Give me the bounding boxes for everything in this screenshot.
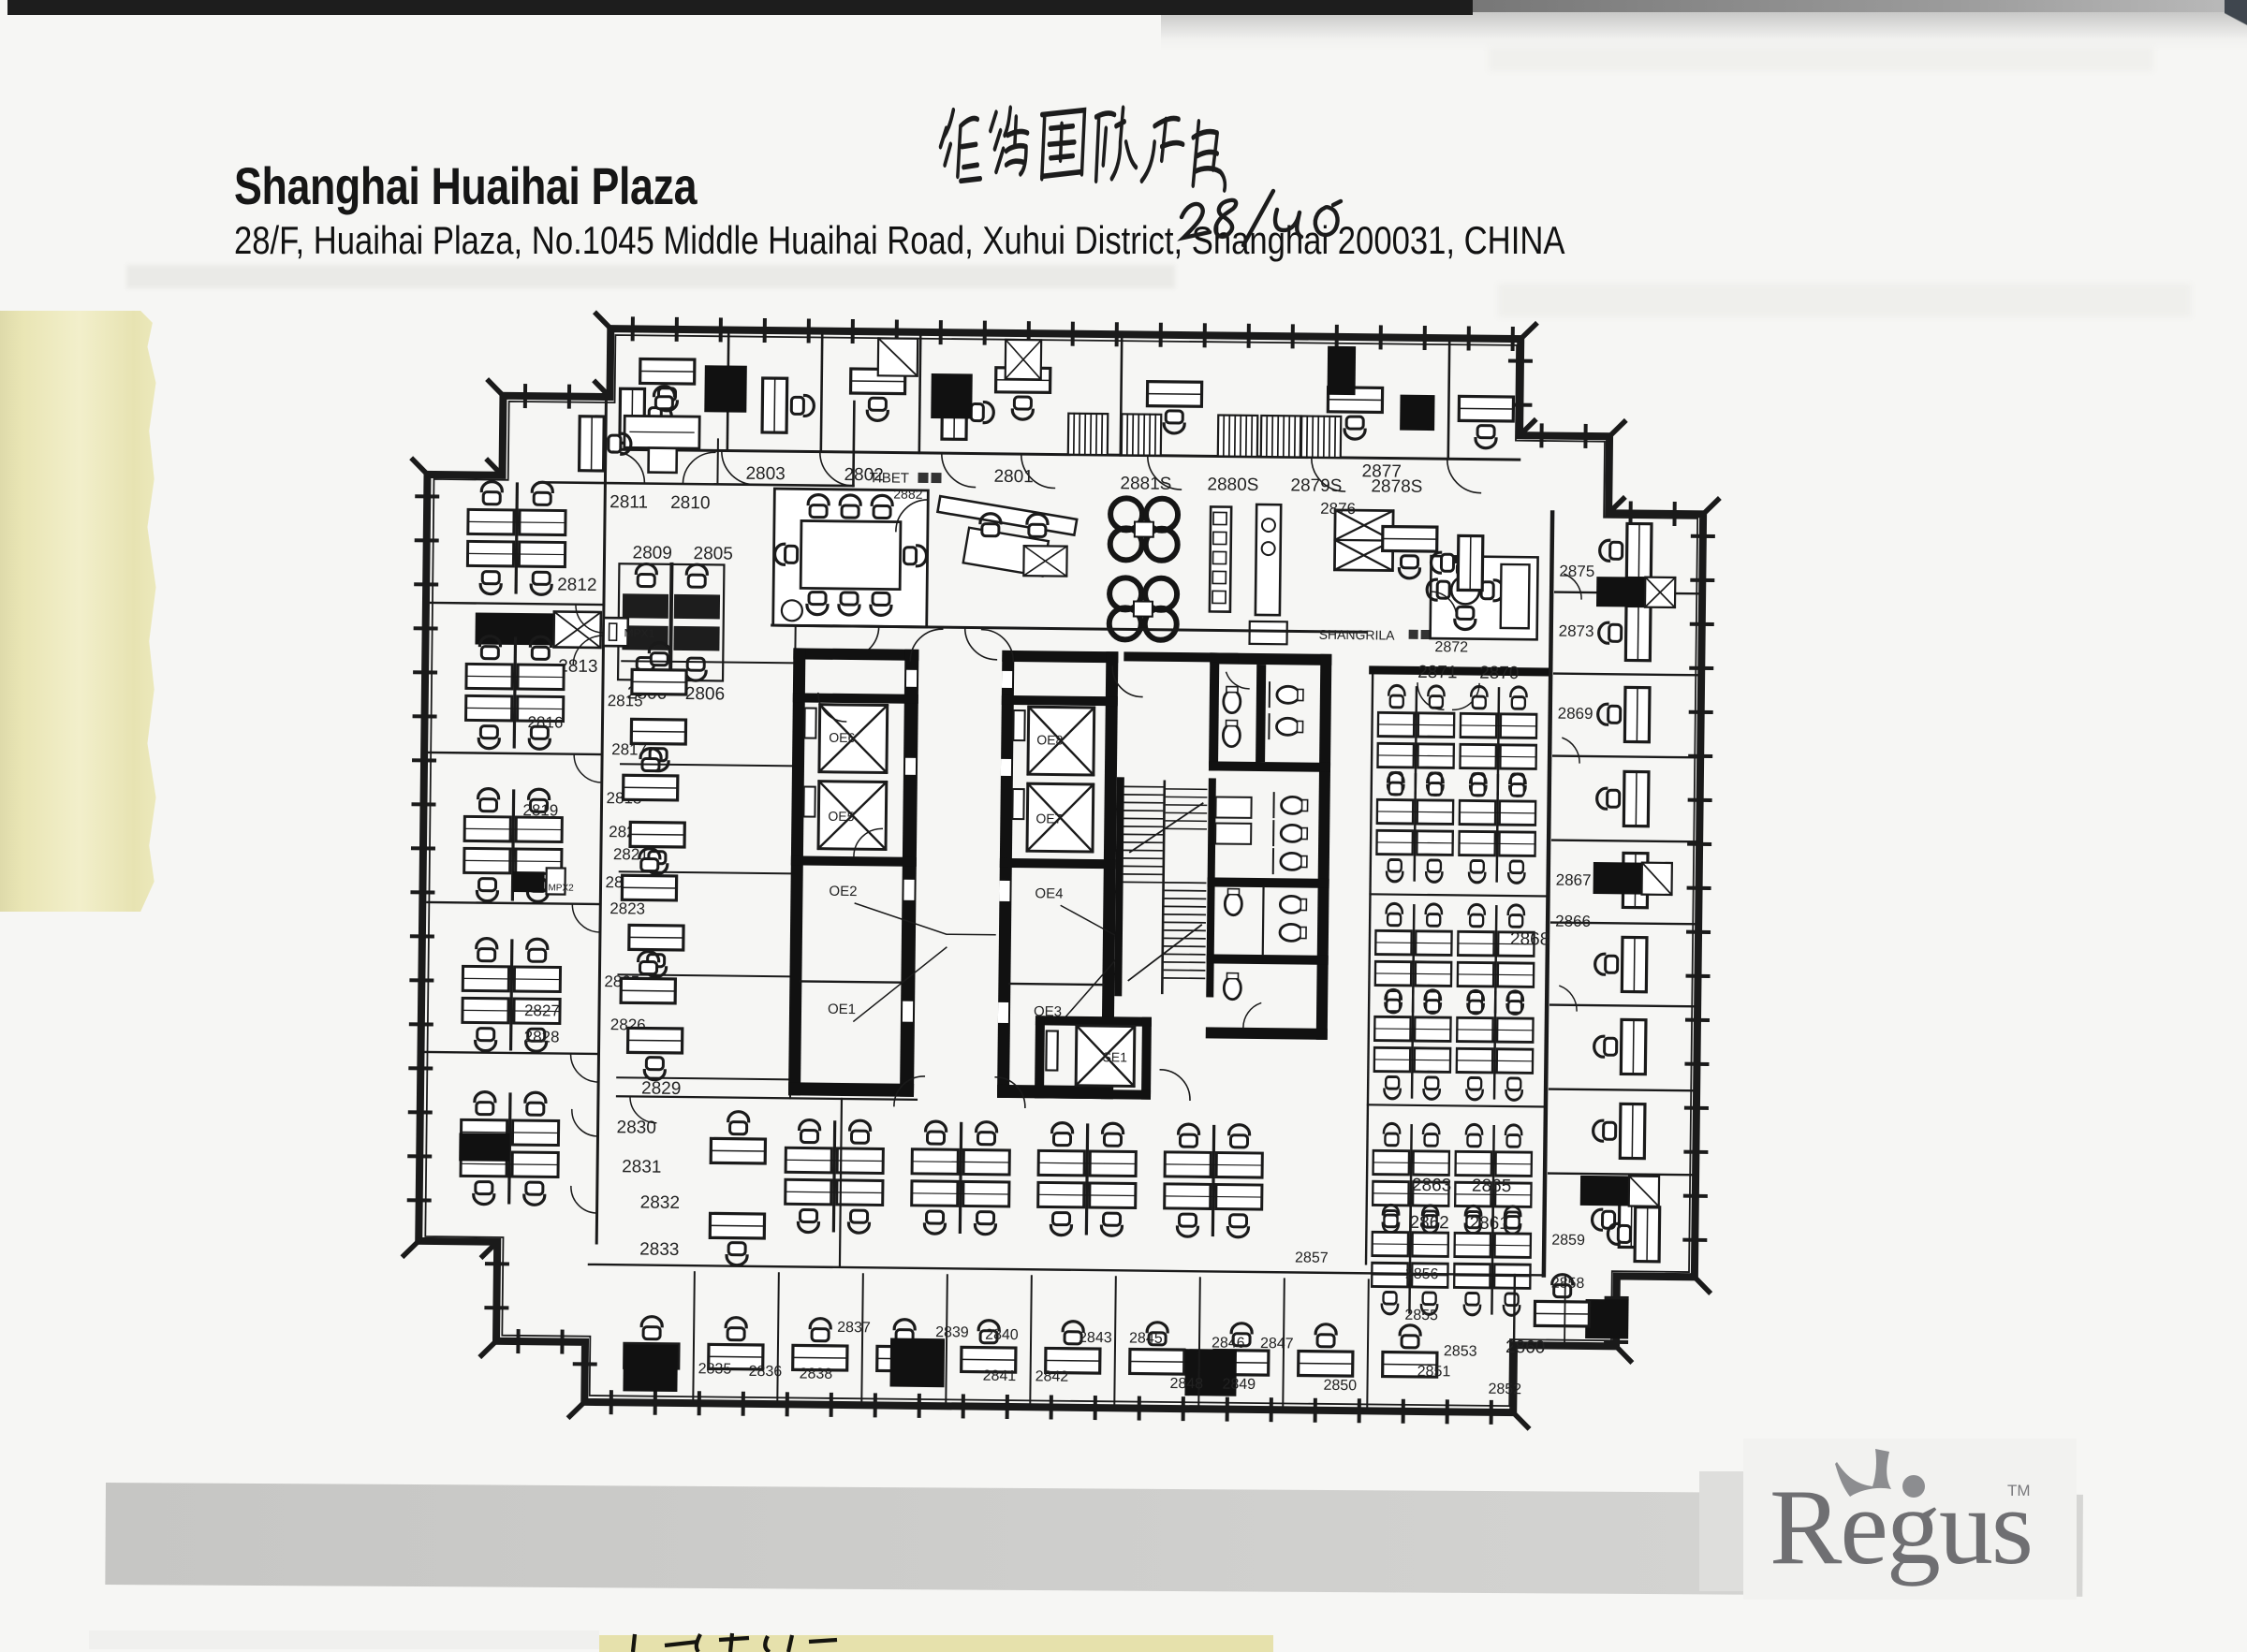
svg-text:2839: 2839: [935, 1324, 969, 1340]
svg-text:SE1: SE1: [1102, 1049, 1127, 1064]
svg-text:2873: 2873: [1559, 622, 1594, 640]
svg-text:2836: 2836: [749, 1364, 783, 1380]
svg-text:OE2: OE2: [829, 884, 857, 899]
svg-text:2879S: 2879S: [1290, 475, 1342, 496]
svg-text:2852: 2852: [1488, 1382, 1521, 1397]
svg-text:2806: 2806: [685, 684, 726, 704]
svg-text:2853: 2853: [1444, 1343, 1477, 1359]
svg-text:2876: 2876: [1320, 500, 1356, 518]
svg-text:OE7: OE7: [1035, 811, 1062, 826]
svg-text:2843: 2843: [1079, 1330, 1112, 1346]
svg-text:2858: 2858: [1551, 1276, 1585, 1292]
svg-text:2859: 2859: [1551, 1233, 1585, 1249]
svg-text:2860: 2860: [1505, 1338, 1546, 1357]
svg-text:2875: 2875: [1559, 563, 1594, 580]
svg-text:2811: 2811: [609, 492, 648, 512]
svg-text:TM: TM: [2007, 1482, 2031, 1499]
svg-text:OE5: OE5: [828, 809, 854, 824]
svg-text:2866: 2866: [1555, 913, 1591, 930]
svg-text:2816: 2816: [527, 713, 563, 731]
svg-text:2810: 2810: [670, 493, 711, 513]
svg-text:2840: 2840: [985, 1327, 1019, 1343]
svg-text:MPX2: MPX2: [548, 883, 574, 893]
svg-text:OE6: OE6: [829, 730, 855, 745]
svg-text:2865: 2865: [1472, 1177, 1512, 1196]
svg-text:2868: 2868: [1510, 929, 1550, 949]
svg-text:SHANGRILA: SHANGRILA: [1319, 627, 1396, 643]
svg-text:2850: 2850: [1323, 1378, 1357, 1394]
svg-text:2823: 2823: [609, 899, 645, 917]
svg-text:2829: 2829: [641, 1079, 682, 1099]
svg-text:2842: 2842: [1035, 1368, 1069, 1384]
svg-text:2827: 2827: [524, 1001, 560, 1019]
svg-text:2871: 2871: [1417, 663, 1458, 682]
svg-text:2869: 2869: [1558, 705, 1593, 723]
svg-text:2863: 2863: [1412, 1176, 1452, 1195]
svg-text:2882: 2882: [893, 487, 923, 502]
svg-text:OE1: OE1: [828, 1001, 856, 1017]
svg-text:2845: 2845: [1129, 1330, 1163, 1346]
svg-text:2872: 2872: [1434, 639, 1468, 655]
svg-text:2862: 2862: [1409, 1213, 1449, 1233]
svg-text:2831: 2831: [622, 1157, 662, 1177]
svg-text:2809: 2809: [632, 543, 672, 563]
svg-text:2812: 2812: [557, 575, 597, 594]
svg-text:2849: 2849: [1222, 1377, 1256, 1393]
svg-text:2848: 2848: [1169, 1376, 1203, 1392]
svg-text:2870: 2870: [1479, 664, 1520, 683]
svg-text:2841: 2841: [983, 1368, 1017, 1384]
svg-text:2803: 2803: [745, 464, 786, 484]
svg-text:2857: 2857: [1295, 1250, 1329, 1265]
svg-text:2801: 2801: [993, 467, 1034, 487]
svg-text:OE4: OE4: [1035, 885, 1063, 901]
svg-text:2881S: 2881S: [1120, 474, 1171, 494]
svg-text:2856: 2856: [1405, 1266, 1439, 1282]
svg-text:2851: 2851: [1417, 1364, 1451, 1380]
svg-text:2828: 2828: [524, 1028, 560, 1045]
svg-text:2855: 2855: [1404, 1308, 1438, 1323]
svg-text:2835: 2835: [698, 1361, 732, 1377]
svg-text:2846: 2846: [1212, 1335, 1245, 1351]
svg-text:2867: 2867: [1556, 871, 1592, 889]
svg-text:2837: 2837: [837, 1320, 871, 1336]
svg-text:2861: 2861: [1469, 1214, 1509, 1234]
svg-text:2805: 2805: [693, 544, 733, 563]
svg-text:2833: 2833: [639, 1240, 680, 1260]
svg-text:Regus: Regus: [1770, 1468, 2032, 1587]
svg-text:2847: 2847: [1260, 1336, 1294, 1352]
svg-text:2880S: 2880S: [1207, 475, 1258, 495]
svg-text:2877: 2877: [1361, 461, 1402, 481]
svg-text:OE8: OE8: [1036, 732, 1063, 747]
svg-text:MPX1: MPX1: [624, 626, 655, 639]
svg-text:2830: 2830: [616, 1118, 656, 1137]
svg-text:2819: 2819: [522, 801, 558, 819]
svg-text:TIBET: TIBET: [869, 470, 909, 486]
svg-text:2838: 2838: [800, 1366, 833, 1382]
svg-text:2832: 2832: [640, 1193, 681, 1213]
